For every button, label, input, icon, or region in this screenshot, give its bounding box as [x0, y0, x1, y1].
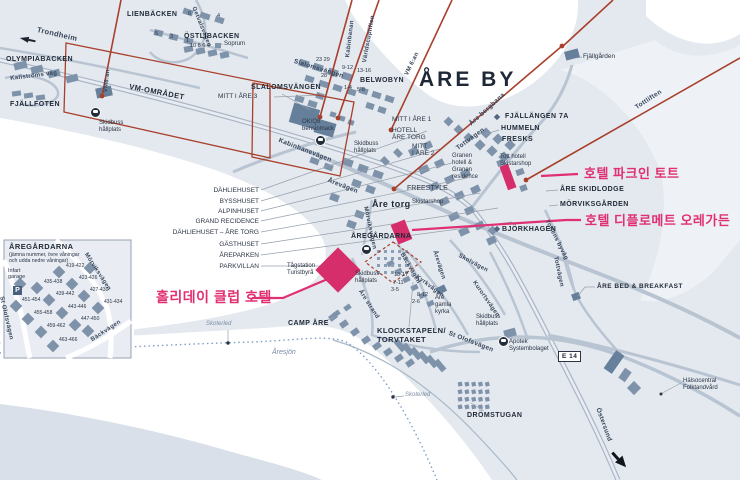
hotel-annotation-diplomat-aregarden[interactable]: 호텔 디플로메트 오레가든	[585, 210, 730, 229]
label-camp-are: CAMP ÅRE	[288, 320, 329, 328]
label-gasthuset: GÄSTHUSET	[219, 241, 259, 248]
map-labels-layer: TrondheimOLYMPIABACKENKallströms vägFJÄL…	[0, 0, 740, 480]
label-halsocentral: Hälsocentral Folktandvård	[683, 378, 718, 392]
label-dahliehuset-are-torg: DÄHLIEHUSET – ÅRE TORG	[173, 229, 259, 236]
label-are-bergbana: Åre bergbana	[468, 92, 507, 128]
label-freestyle: FREESTYLE	[407, 185, 448, 193]
label-inset-unit-439-442: 439-442	[56, 292, 74, 298]
label-trondheim: Trondheim	[36, 26, 78, 44]
label-tagstation: Tågstation Turistbyrå	[287, 263, 315, 277]
hotel-annotation-holiday-club[interactable]: 홀리데이 클럽 호텔	[156, 287, 272, 307]
label-num-7-11: 7-11	[393, 280, 404, 286]
label-vm-omradet: VM-OMRÅDET	[128, 83, 185, 102]
label-inset-unit-455-458: 455-458	[34, 311, 52, 317]
label-belwobyn: BELWOBYN	[360, 77, 404, 85]
label-slalom-num-5-8: 5-8	[357, 87, 365, 93]
label-areparken: ÅREPARKEN	[219, 252, 259, 259]
label-arevagen-2: Årevägen	[430, 250, 446, 280]
label-tottvagen-granen: Tottvägen	[455, 126, 486, 152]
label-kabinbanan: Kabinbanan	[345, 20, 356, 58]
label-num-3-5: 3-5	[391, 287, 399, 293]
label-lien-num-5: 5	[155, 31, 158, 37]
label-inset-unit-451-454: 451-454	[22, 298, 40, 304]
label-skidbuss-3: Skidbuss hållplats	[355, 271, 379, 285]
label-aresjon: Åresjön	[272, 349, 296, 357]
label-dahliehuset: DÄHLIEHUSET	[213, 187, 259, 194]
label-skidbuss-4: Skidbuss hållplats	[476, 314, 500, 328]
label-inset-unit-459-462: 459-462	[47, 324, 65, 330]
label-fresks: FRESKS	[502, 136, 533, 144]
label-ostlibacken: ÖSTLIBACKEN	[184, 33, 240, 41]
label-hotell-are-torg: HOTELL ÅRE TORG	[392, 127, 426, 142]
label-fjallfoten: FJÄLLFOTEN	[10, 101, 60, 109]
label-lien-num-4: 4	[217, 13, 220, 19]
label-arevagen-1: Årevägen	[326, 177, 359, 195]
label-are-gamla-kyrka: Åre gamla kyrka	[435, 295, 451, 316]
label-varldscupliften: Världscupliften	[362, 15, 377, 63]
label-inset-unit-419-422: 419-422	[66, 264, 84, 270]
label-inset-infart-garage: Infart garage	[8, 268, 25, 281]
label-klockstapeln: KLOCKSTAPELN/ TORVTAKET	[377, 327, 446, 344]
label-ostersund: Östersund	[594, 407, 613, 443]
bus-stop-icon	[90, 107, 101, 118]
bus-stop-icon	[498, 336, 509, 347]
are-by-tourist-map: TrondheimOLYMPIABACKENKallströms vägFJÄL…	[0, 0, 740, 480]
label-olympiabacken: OLYMPIABACKEN	[6, 56, 73, 64]
label-skidbuss-2: Skidbuss hållplats	[354, 141, 378, 155]
label-inset-unit-447-450: 447-450	[81, 317, 99, 323]
label-num-13-17: 13-17	[394, 272, 408, 278]
label-slalomsvangen-area: SLALOMSVÄNGEN	[251, 84, 321, 92]
label-grand-recidence: GRAND RECIDENCE	[195, 218, 259, 225]
parking-icon: P	[13, 286, 22, 295]
label-okq8: OK/Q8 bensinmack	[302, 119, 334, 133]
label-alpinhuset: ALPINHUSET	[218, 208, 259, 215]
label-slalom-nums-23-29: 23 29	[316, 57, 330, 63]
label-tottliften: Tottliften	[634, 88, 664, 111]
label-kallstroms-vag: Kallströms väg	[10, 70, 58, 83]
label-lien-num-3: 3	[170, 34, 173, 40]
label-lienbacken: LIENBÄCKEN	[127, 11, 177, 19]
label-ostlibacken-nums: 10 8 6 4	[190, 43, 210, 49]
label-skidbuss-1: Skidbuss hållplats	[99, 120, 123, 134]
label-skistarshop: Skistarshop	[412, 199, 443, 206]
label-num-8-12: 8-12	[417, 292, 428, 298]
label-bysshuset: BYSSHUSET	[220, 198, 259, 205]
label-vm8an: VM8:an	[103, 69, 112, 93]
label-dromstugan: DRÖMSTUGAN	[467, 412, 522, 420]
label-slalom-num-13-16: 13-16	[357, 68, 371, 74]
label-tott-hotell: Tott hotell Skistarshop	[500, 154, 531, 168]
e14-road-sign: E 14	[558, 351, 581, 362]
label-skoterled-2: Skoterled	[405, 392, 430, 399]
label-inset-unit-435-438: 435-438	[44, 280, 62, 286]
label-inset-title: ÅREGÅRDARNA	[9, 243, 74, 252]
label-are-strand: Åre strand	[356, 289, 380, 320]
label-soprum: Soprum	[224, 41, 245, 48]
label-inset-unit-427-430: 427-430	[90, 288, 108, 294]
label-parkvillan: PARKVILLAN	[219, 263, 259, 270]
label-are-by: ÅRE BY	[419, 68, 516, 92]
label-are-torg: Åre torg	[372, 199, 411, 209]
label-inset-unit-463-466: 463-466	[59, 338, 77, 344]
label-aregardarna-map: ÅREGÅRDARNA	[351, 233, 412, 241]
hotel-annotation-park-inn-tott[interactable]: 호텔 파크인 토트	[584, 163, 679, 182]
label-inset-unit-431-434: 431-434	[104, 300, 122, 306]
label-are-bed-breakfast: ÅRE BED & BREAKFAST	[597, 283, 683, 290]
label-mitt-i-are-1: MITT I ÅRE 1	[392, 116, 431, 123]
label-skolvagen: Skolvägen	[457, 253, 489, 274]
label-inset-backvagen: Bäckvägen	[90, 319, 123, 344]
label-num-2-6: 2-6	[412, 299, 420, 305]
label-inset-unit-443-446: 443-446	[68, 305, 86, 311]
label-are-skidlodge: ÅRE SKIDLODGE	[560, 186, 624, 194]
label-hummeln: HUMMELN	[501, 125, 540, 133]
label-apotek: Apotek Systembolaget	[509, 339, 549, 353]
label-slalom-num-1-4: 1-4	[344, 85, 352, 91]
bus-stop-icon	[361, 244, 372, 255]
label-fjallgarden: Fjällgården	[583, 53, 615, 60]
label-skoterled-1: Skoterled	[206, 321, 231, 328]
label-mitt-i-are-2: MITT I ÅRE 2	[412, 143, 434, 158]
label-getvalsvagen: Getvalsvägen	[190, 6, 212, 48]
label-morviksgarden: MÖRVIKSGÅRDEN	[560, 201, 629, 209]
label-granen-hotell: Granen hotell & Granen residence	[452, 153, 478, 181]
label-fjallangen-7a: FJÄLLÄNGEN 7A	[505, 113, 569, 121]
label-mitt-i-are-3: MITT I ÅRE 3	[218, 93, 257, 100]
bus-stop-icon	[315, 135, 326, 146]
label-st-olofsvagen-map: St Olofsvägen	[447, 330, 494, 354]
label-inset-st-olofsvagen: St Olofsvägen	[0, 296, 14, 341]
label-slalom-num-9-12: 9-12	[342, 65, 353, 71]
label-inset-unit-423-426: 423-426	[79, 276, 97, 282]
